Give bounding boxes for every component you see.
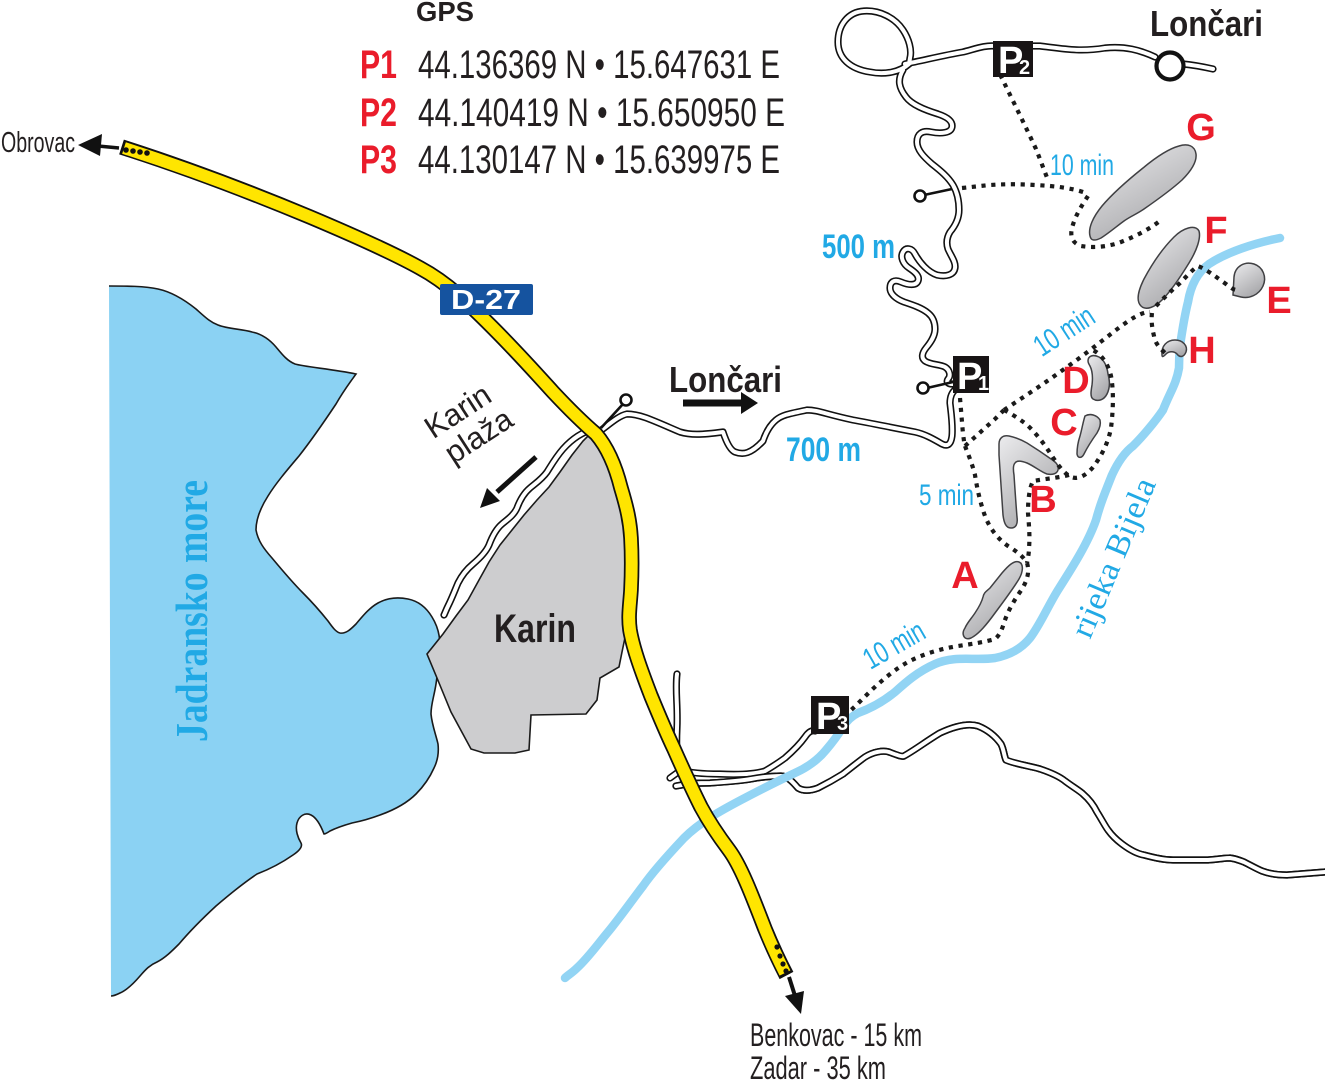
svg-text:44.136369 N • 15.647631 E: 44.136369 N • 15.647631 E [418,43,780,87]
svg-text:Zadar - 35 km: Zadar - 35 km [750,1050,886,1083]
svg-text:P3: P3 [360,138,397,182]
svg-text:500 m: 500 m [822,228,895,266]
svg-text:3: 3 [837,713,848,735]
svg-text:2: 2 [1019,57,1030,79]
svg-text:G: G [1186,107,1216,149]
svg-text:F: F [1204,210,1227,252]
svg-text:Karin: Karin [494,607,576,651]
svg-text:44.130147 N • 15.639975 E: 44.130147 N • 15.639975 E [418,138,780,182]
svg-text:Lončari: Lončari [1150,3,1263,44]
svg-text:44.140419 N • 15.650950 E: 44.140419 N • 15.650950 E [418,91,785,135]
svg-text:10 min: 10 min [1050,149,1114,182]
svg-text:A: A [951,555,978,597]
svg-text:5 min: 5 min [919,479,974,512]
svg-text:GPS: GPS [416,0,474,27]
svg-text:B: B [1029,479,1056,521]
svg-text:1: 1 [978,373,989,395]
svg-text:Benkovac - 15 km: Benkovac - 15 km [750,1017,922,1053]
svg-text:700 m: 700 m [786,431,861,469]
svg-text:H: H [1188,330,1215,372]
svg-text:P1: P1 [360,43,397,87]
svg-text:D: D [1062,360,1089,402]
svg-text:Jadransko more: Jadransko more [167,480,217,742]
svg-text:Obrovac: Obrovac [1,127,75,159]
svg-text:C: C [1050,402,1077,444]
svg-text:D-27: D-27 [451,284,521,315]
svg-text:P2: P2 [360,91,397,135]
svg-text:Lončari: Lončari [669,359,782,400]
svg-text:E: E [1266,280,1291,322]
